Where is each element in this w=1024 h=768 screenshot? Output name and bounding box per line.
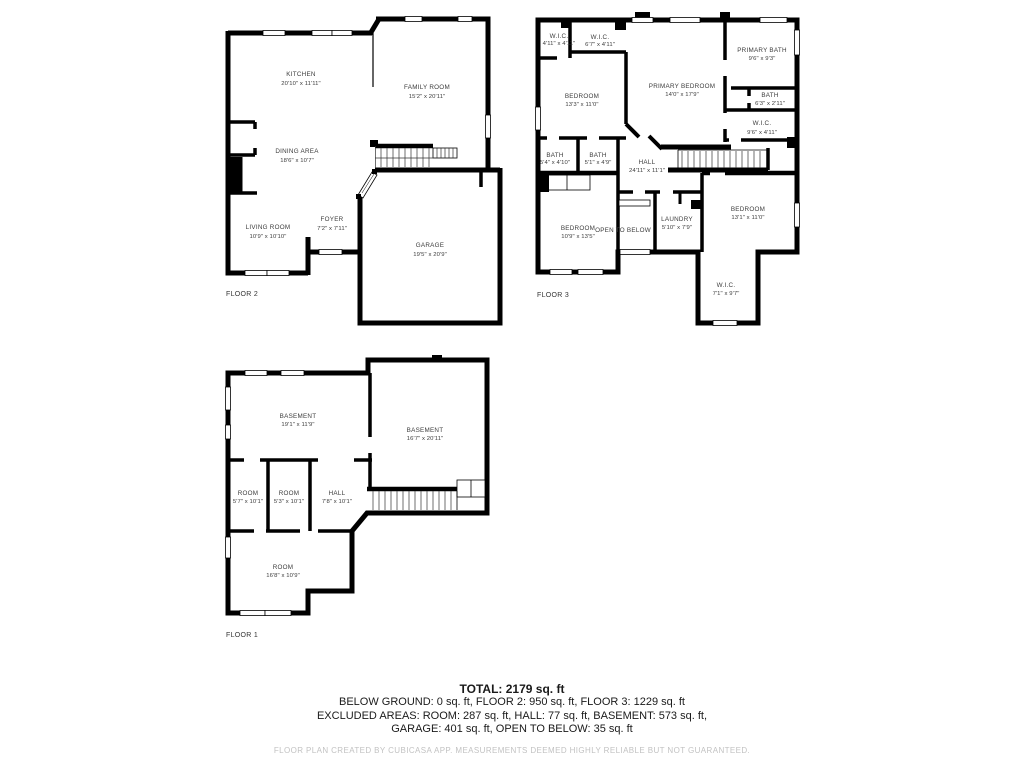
room-dims-garage: 19'5" x 20'9" [413, 252, 447, 258]
room-dims-basement-a: 19'1" x 11'9" [281, 422, 314, 428]
fireplace-block [226, 157, 243, 192]
bedroom-closet [543, 175, 590, 190]
room-dims-bath-c: 5'1" x 4'9" [585, 160, 612, 166]
floor3-plan: W.I.C. 4'11" x 4'11" W.I.C. 6'7" x 4'11"… [535, 12, 805, 334]
floor1-plan: BASEMENT 19'1" x 11'9" BASEMENT 16'7" x … [220, 355, 495, 647]
room-label-family-room: FAMILY ROOM [404, 84, 450, 91]
wall-block [561, 20, 570, 28]
room-label-bedroom-left: BEDROOM [565, 93, 599, 100]
room-label-basement-b: BASEMENT [407, 427, 444, 434]
room-dims-basement-b: 16'7" x 20'11" [407, 436, 444, 442]
floor2-stairs [370, 140, 457, 168]
room-dims-wic-a: 4'11" x 4'11" [543, 41, 576, 47]
room-label-hall: HALL [639, 159, 656, 166]
room-label-bath-a: BATH [761, 92, 779, 99]
room-label-wic-c: W.I.C. [753, 120, 772, 127]
room-label-room-b: ROOM [279, 490, 300, 497]
room-dims-room-b: 5'3" x 10'1" [274, 499, 304, 505]
room-label-open-to-below: OPEN TO BELOW [595, 227, 651, 234]
room-label-laundry: LAUNDRY [661, 216, 693, 223]
room-dims-primary-bath: 9'6" x 9'3" [749, 56, 776, 62]
room-dims-room-large: 16'8" x 10'9" [266, 573, 300, 579]
room-label-garage: GARAGE [416, 242, 444, 249]
wall-block [615, 20, 626, 30]
room-label-bath-b: BATH [546, 152, 564, 159]
room-label-primary-bath: PRIMARY BATH [737, 47, 787, 54]
room-label-bath-c: BATH [589, 152, 607, 159]
room-label-wic-a: W.I.C. [550, 33, 569, 40]
room-label-hall-basement: HALL [329, 490, 346, 497]
floor-plan-page: KITCHEN 20'10" x 11'11" FAMILY ROOM 15'2… [0, 0, 1024, 768]
room-label-wic-b: W.I.C. [591, 34, 610, 41]
wall-bump [720, 12, 730, 20]
wall-block [538, 175, 549, 192]
wall-block [787, 137, 797, 148]
room-label-living-room: LIVING ROOM [246, 224, 291, 231]
room-dims-bedroom-lower-left: 10'9" x 13'5" [561, 234, 595, 240]
room-label-kitchen: KITCHEN [286, 71, 316, 78]
room-dims-hall-basement: 7'8" x 10'1" [322, 499, 352, 505]
room-label-wic-d: W.I.C. [717, 282, 736, 289]
floor1-room-labels: BASEMENT 19'1" x 11'9" BASEMENT 16'7" x … [233, 413, 443, 579]
room-label-dining-area: DINING AREA [275, 148, 319, 155]
room-dims-wic-d: 7'1" x 9'7" [713, 291, 740, 297]
room-dims-bedroom-right: 13'1" x 11'0" [731, 215, 764, 221]
floor3-stairs [668, 148, 768, 170]
room-dims-room-a: 5'7" x 10'1" [233, 499, 263, 505]
room-dims-living-room: 10'9" x 10'10" [250, 234, 287, 240]
floor1-interior-walls [228, 373, 372, 531]
room-dims-foyer: 7'2" x 7'11" [317, 226, 347, 232]
room-label-room-a: ROOM [238, 490, 259, 497]
room-dims-hall: 24'11" x 11'1" [629, 168, 665, 174]
laundry-closet-block [691, 200, 702, 209]
room-label-basement-a: BASEMENT [280, 413, 317, 420]
room-label-foyer: FOYER [321, 216, 344, 223]
disclaimer: FLOOR PLAN CREATED BY CUBICASA APP. MEAS… [0, 746, 1024, 755]
room-label-primary-bedroom: PRIMARY BEDROOM [649, 83, 716, 90]
foyer-diagonal-door [356, 169, 377, 199]
room-label-bedroom-right: BEDROOM [731, 206, 765, 213]
floor1-label: FLOOR 1 [226, 632, 258, 639]
room-dims-wic-c: 9'6" x 4'11" [747, 130, 777, 136]
room-dims-bath-a: 6'3" x 2'11" [755, 101, 785, 107]
room-dims-bedroom-left: 13'3" x 11'0" [565, 102, 598, 108]
floor2-outer-walls [228, 19, 500, 323]
area-summary: TOTAL: 2179 sq. ft BELOW GROUND: 0 sq. f… [0, 682, 1024, 755]
room-label-room-large: ROOM [273, 564, 294, 571]
floor3-label: FLOOR 3 [537, 292, 569, 299]
room-dims-primary-bedroom: 14'0" x 17'9" [665, 92, 699, 98]
room-dims-wic-b: 6'7" x 4'11" [585, 42, 615, 48]
room-dims-bath-b: 5'4" x 4'10" [540, 160, 570, 166]
floor2-label: FLOOR 2 [226, 291, 258, 298]
floor2-plan: KITCHEN 20'10" x 11'11" FAMILY ROOM 15'2… [222, 15, 507, 327]
floor1-stairs [367, 480, 485, 510]
excluded-areas-1: EXCLUDED AREAS: ROOM: 287 sq. ft, HALL: … [0, 710, 1024, 724]
room-dims-laundry: 5'10" x 7'9" [662, 225, 692, 231]
room-label-bedroom-lower-left: BEDROOM [561, 225, 595, 232]
floor2-room-labels: KITCHEN 20'10" x 11'11" FAMILY ROOM 15'2… [246, 71, 450, 258]
room-dims-family-room: 15'2" x 20'11" [409, 94, 446, 100]
wall-bump [432, 355, 442, 360]
room-dims-dining-area: 18'6" x 10'7" [280, 158, 314, 164]
room-dims-kitchen: 20'10" x 11'11" [281, 81, 320, 87]
excluded-areas-2: GARAGE: 401 sq. ft, OPEN TO BELOW: 35 sq… [0, 723, 1024, 737]
total-area: TOTAL: 2179 sq. ft [0, 682, 1024, 696]
floor-areas: BELOW GROUND: 0 sq. ft, FLOOR 2: 950 sq.… [0, 696, 1024, 710]
